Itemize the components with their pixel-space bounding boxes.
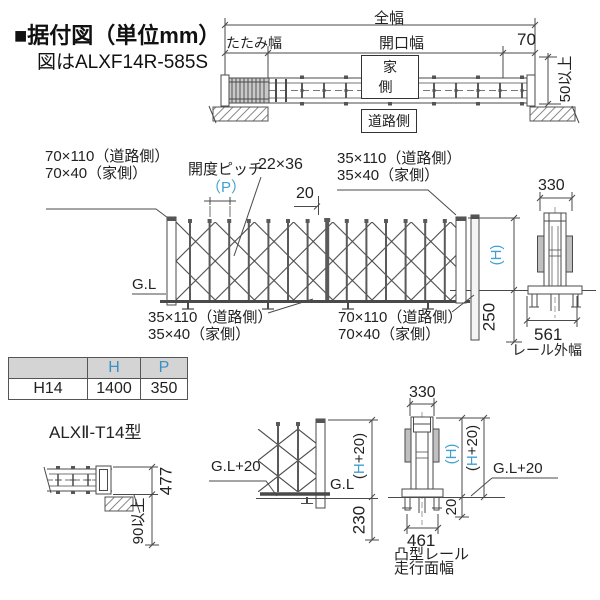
dim-h: (H): [489, 245, 506, 266]
middle-side-view: [524, 192, 582, 327]
house-side-box: 家側: [361, 55, 419, 99]
spec-table-data-row: H14 1400 350: [9, 379, 188, 400]
spec-header-h: H: [88, 358, 141, 379]
dim-70: 70: [517, 31, 536, 50]
gl20-label-right: G.L+20: [493, 461, 543, 478]
gl20-label-left: G.L+20: [211, 459, 261, 476]
crossbar-size: 22×36: [258, 156, 303, 174]
spec-h-value: 1400: [88, 379, 141, 400]
page-subtitle: 図はALXF14R-585S: [37, 53, 208, 74]
rail-size-road: 35×110（道路側）: [148, 310, 272, 327]
spec-p-value: 350: [141, 379, 188, 400]
rail-type-label-2: 走行面幅: [394, 561, 454, 578]
dim-250: 250: [481, 303, 500, 331]
side-dim-330: 330: [538, 177, 565, 195]
gl-label: G.L: [132, 277, 156, 294]
dim-h20-mid: (H+20): [352, 433, 369, 479]
dim-230: 230: [351, 506, 370, 534]
middle-elevation: [46, 177, 596, 345]
spec-header-blank: [9, 358, 88, 379]
post-size-road: 70×110（道路側）: [45, 149, 169, 166]
gl-label-bottom: G.L: [330, 477, 354, 494]
end-size-house: 35×40（家側）: [337, 168, 439, 185]
installation-drawing: ■据付図（単位mm） 図はALXF14R-585S 全幅 たたみ幅 開口幅 70…: [0, 0, 600, 600]
dim-opening-width: 開口幅: [379, 36, 424, 53]
dim-330-bottom: 330: [409, 384, 436, 402]
pitch-label: 開度ピッチ: [188, 162, 263, 179]
page-title: ■据付図（単位mm）: [14, 24, 220, 48]
dim-20-top: 20: [296, 185, 314, 203]
diagram-linework: [0, 0, 600, 600]
rail-size-house: 35×40（家側）: [148, 327, 250, 344]
spec-model: H14: [9, 379, 88, 400]
pitch-p-label: （P）: [206, 180, 246, 197]
spec-table-header-row: H P: [9, 358, 188, 379]
road-side-box: 道路側: [361, 109, 417, 133]
dim-fold-width: たたみ幅: [226, 36, 282, 51]
end-post-size-house: 70×40（家側）: [338, 327, 440, 344]
dim-h-bottom: (H): [444, 444, 461, 465]
dim-20-bottom: 20: [444, 499, 461, 516]
end-size-road: 35×110（道路側）: [337, 151, 461, 168]
dim-90-min: 90以上: [131, 498, 148, 545]
spec-header-p: P: [141, 358, 188, 379]
end-post-size-road: 70×110（道路側）: [338, 310, 462, 327]
dim-clearance-50: 50以上: [558, 56, 575, 103]
dim-477: 477: [158, 467, 177, 495]
dim-h20-bottom: (H+20): [465, 425, 482, 471]
model-label: ALXⅡ-T14型: [49, 424, 141, 443]
spec-table: H P H14 1400 350: [8, 357, 188, 400]
title-bullet-icon: ■: [14, 23, 27, 48]
rail-outer-label: レール外幅: [512, 343, 582, 358]
post-size-house: 70×40（家側）: [45, 166, 147, 183]
dim-total-width: 全幅: [374, 11, 404, 28]
